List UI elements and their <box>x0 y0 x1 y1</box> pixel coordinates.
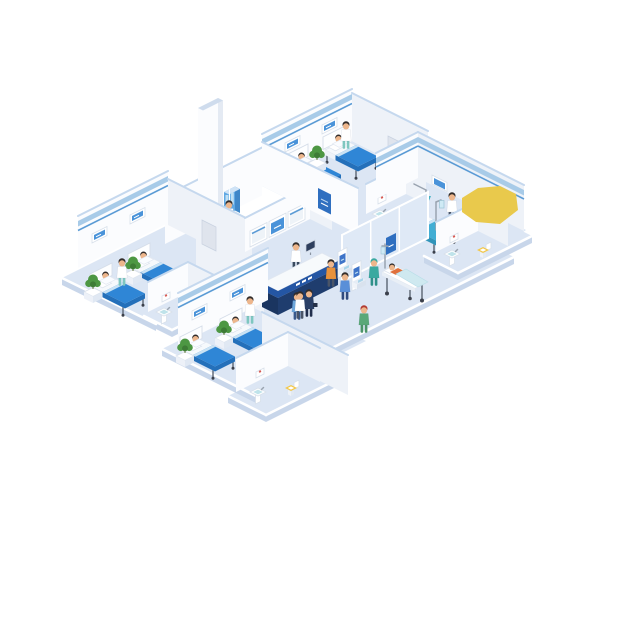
hospital-floor-illustration: Isometric hospital ward floor illustrati… <box>0 0 640 640</box>
iv-bag <box>381 247 385 254</box>
briefcase <box>313 303 318 307</box>
illustration-canvas: Isometric hospital ward floor illustrati… <box>0 0 640 640</box>
